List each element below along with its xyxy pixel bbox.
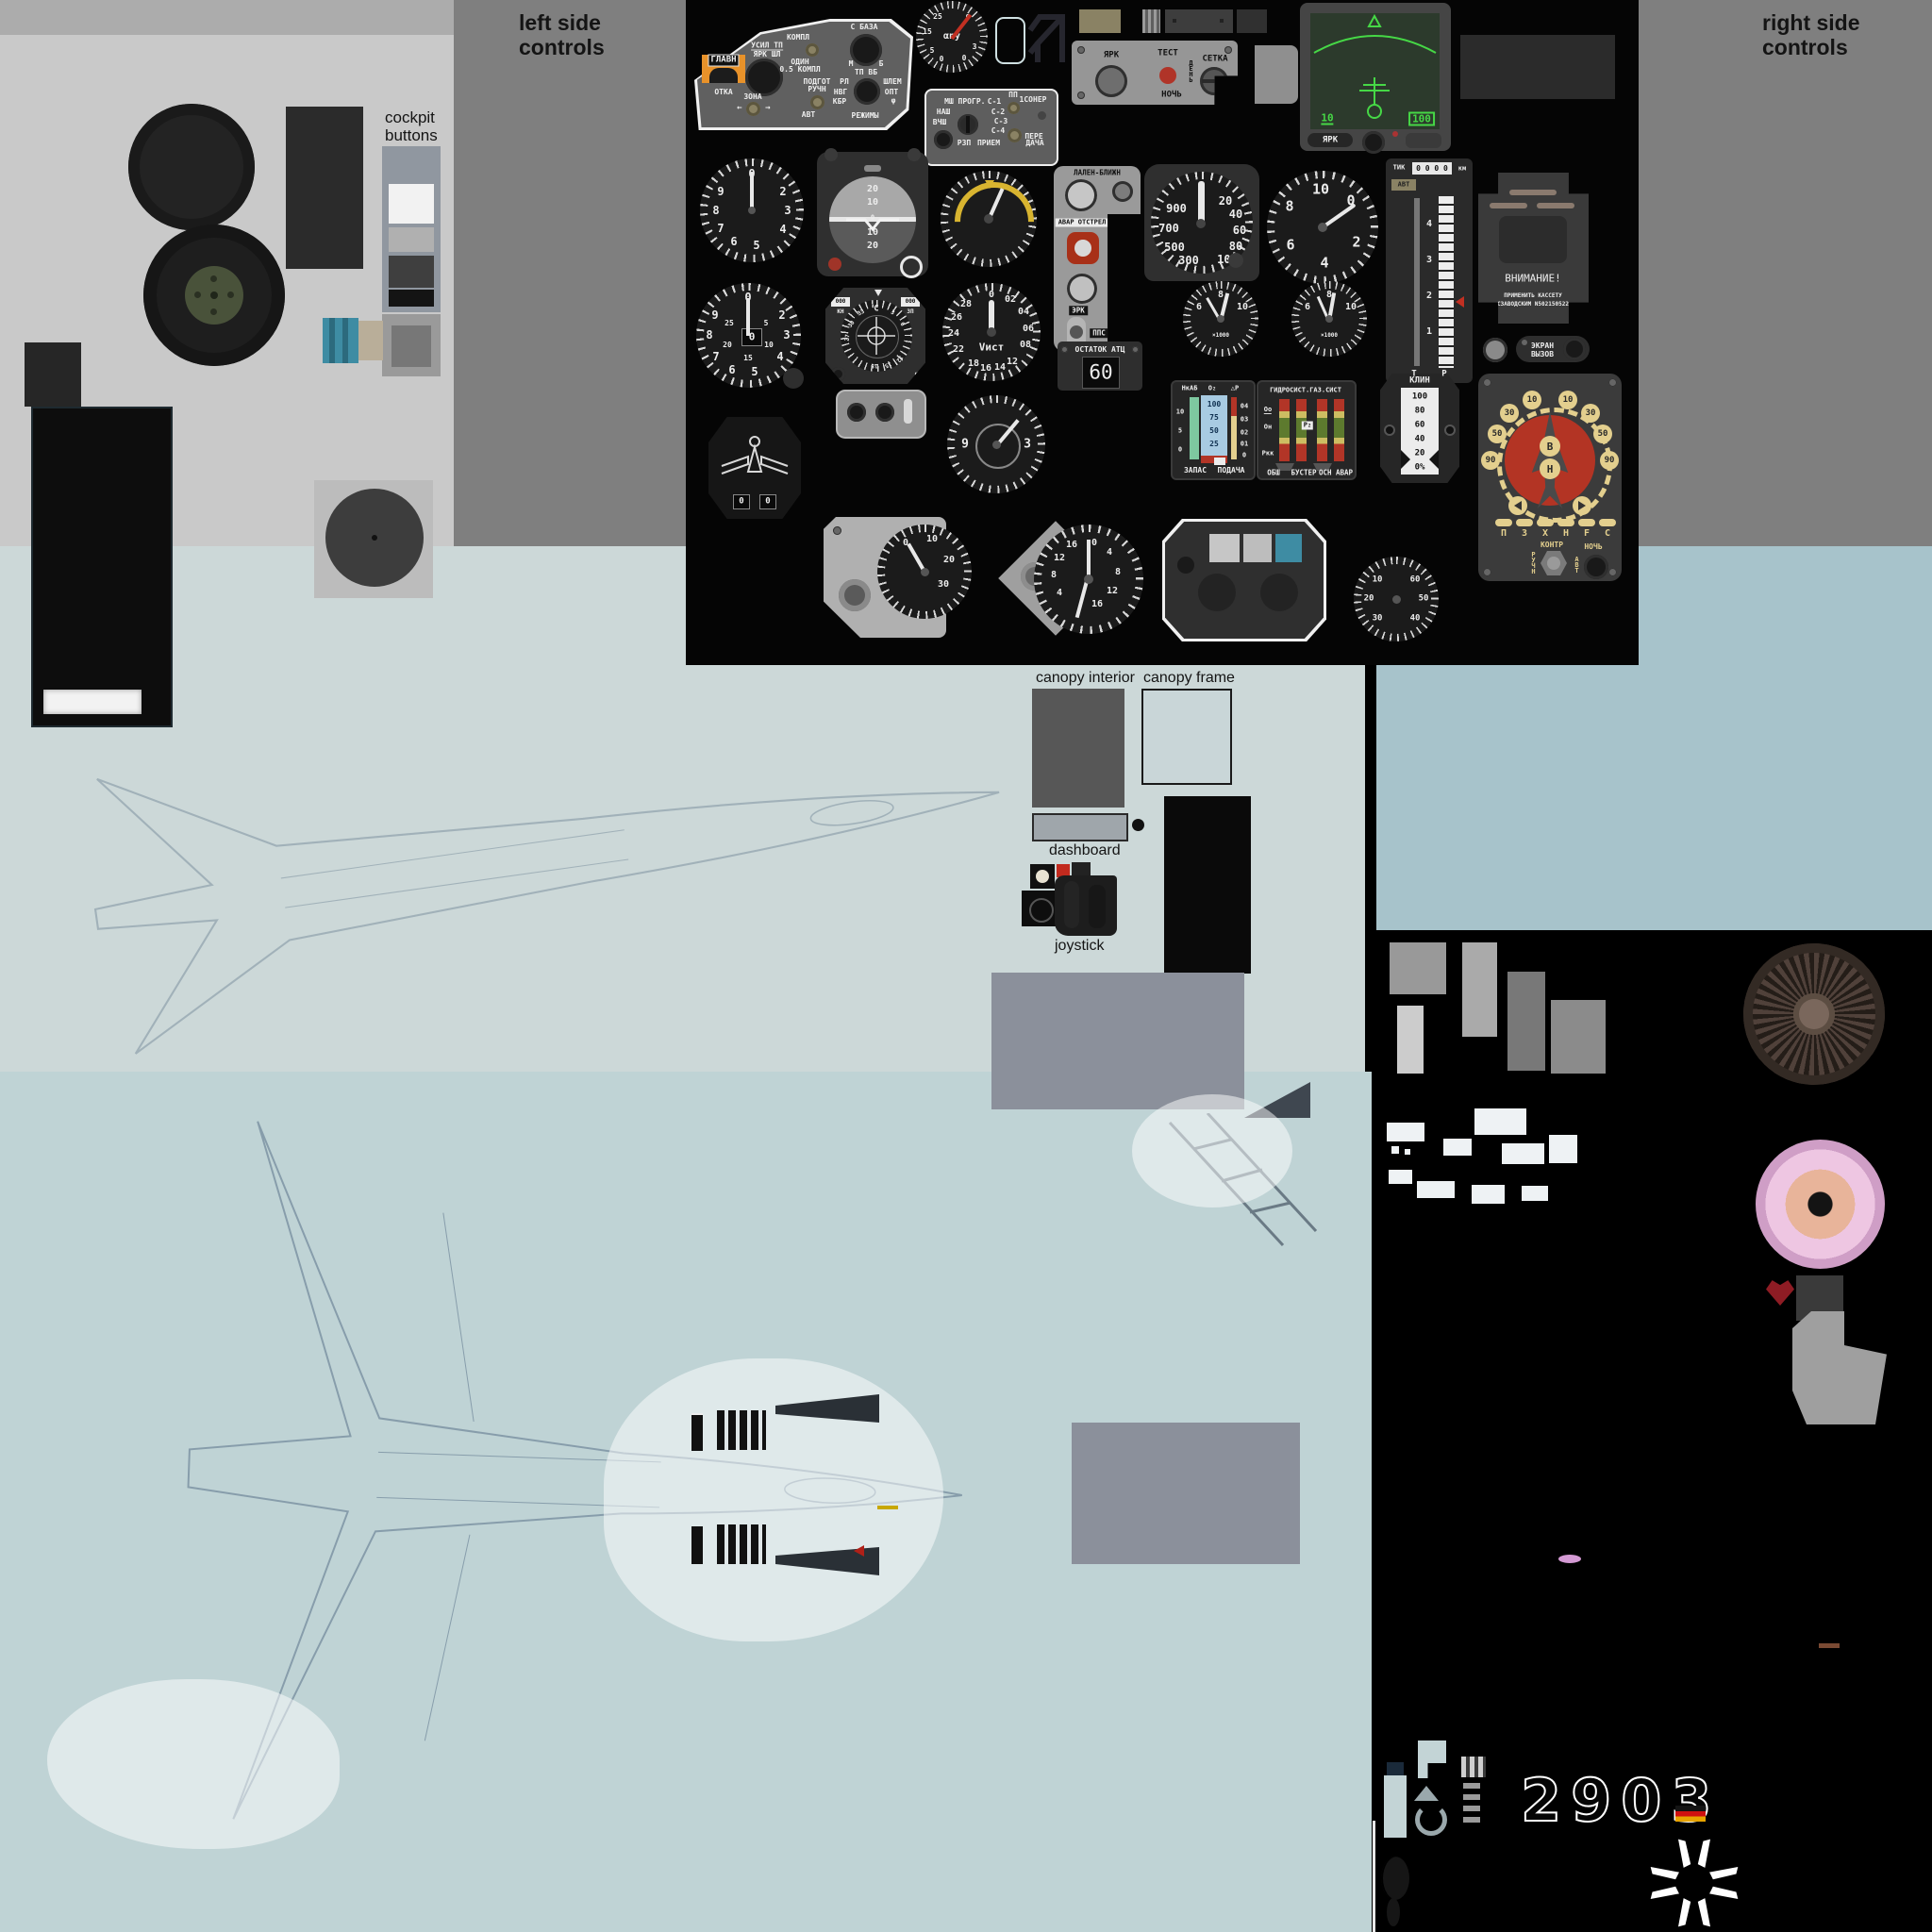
button-gray[interactable] (389, 227, 434, 252)
zona-arrow-right[interactable]: → (765, 105, 770, 113)
strip-toggle[interactable] (904, 399, 912, 424)
adf-card[interactable]: С 33 30 27 3 6 12 15 18 (841, 300, 912, 372)
striped-block-decal (1461, 1757, 1486, 1777)
nvg-label: НВГ (834, 89, 847, 96)
half-kompl-label: 0.5 КОМПЛ (779, 66, 820, 74)
circular-arrow-decal (1415, 1804, 1447, 1836)
ladder-dash-4 (1463, 1817, 1480, 1823)
canopy-interior-swatch (1032, 689, 1124, 808)
stopwatch-crown[interactable] (783, 368, 804, 389)
warning-line1: ПРИМЕНИТЬ КАССЕТУ (1504, 293, 1561, 299)
emblem-window-2: 0 (759, 494, 776, 509)
panel-square-2[interactable] (1243, 534, 1272, 562)
dark-box-right-of-radar (1460, 35, 1615, 99)
radar-red-dot (1392, 131, 1398, 137)
pressure-gauge: 10 20 30 40 50 60 (1354, 557, 1439, 641)
panel-square-teal[interactable] (1275, 534, 1302, 562)
panel-circle-2[interactable] (1260, 574, 1298, 611)
vario-gauge (941, 171, 1037, 267)
yark-knob[interactable] (1095, 65, 1127, 97)
small-dark-box (25, 342, 81, 407)
attitude-adjuster[interactable] (864, 165, 881, 172)
tp-vb-label: ТП ВБ (855, 69, 877, 76)
light-strip-9 (1522, 1186, 1548, 1201)
stopwatch-hand (746, 298, 750, 336)
light-strip-4 (1502, 1143, 1544, 1164)
speed-gauge: 900 700 500 300 20 40 60 80 100 (1144, 164, 1259, 281)
glavn-label: ГЛАВН (708, 56, 738, 66)
rpm-gauge-right: 6 8 10 ×1000 (1291, 281, 1367, 357)
altimeter: 10 0 2 4 6 8 (1267, 171, 1378, 284)
range-tape-strip (1439, 196, 1454, 368)
attitude-indicator: 20 10 0 10 20 (817, 152, 928, 276)
left-side-controls-label: left sidecontrols (519, 11, 605, 60)
fuselage-part-3 (1462, 942, 1497, 1037)
warning-window (1499, 216, 1567, 263)
warning-line2: СЗАВОДСКИМ N502150522 (1497, 302, 1569, 308)
attitude-sphere: 20 10 0 10 20 (829, 176, 916, 263)
hydraulic-bar-3 (1317, 399, 1327, 461)
range-thermo (1414, 198, 1420, 366)
adf-compass: 000 КН 000 ЗП С 33 30 27 3 6 12 15 18 φ (825, 288, 925, 384)
cockpit-buttons-label: cockpitbuttons (385, 108, 438, 144)
emblem-window-1: 0 (733, 494, 750, 509)
intake-detail-bottom (691, 1526, 703, 1564)
canopy-frame-label: canopy frame (1143, 670, 1235, 687)
avar-otstrel-button[interactable] (1067, 232, 1099, 264)
yellow-dash-decal (877, 1506, 898, 1509)
wing-emblem-indicator: 0 0 (708, 417, 801, 519)
bg-gray-mid-right (1639, 0, 1932, 546)
arrow-up-decal (1414, 1786, 1439, 1801)
range-pointer (1456, 296, 1464, 308)
aoa-g-gauge: 25 15 5 0 9 3 0 αnу (916, 1, 988, 73)
phi-label: φ (891, 97, 896, 105)
ladder-dash-3 (1463, 1806, 1480, 1811)
olive-strip (1079, 9, 1121, 33)
rpm-x1000: ×1000 (1212, 333, 1229, 339)
position-indicator: 10 10 30 30 50 50 90 90 В Н П З Х Н F С … (1478, 374, 1622, 581)
camera-pod (31, 407, 173, 727)
strip-knob-1[interactable] (847, 403, 866, 422)
tire-front (128, 104, 255, 230)
zona-arrow-left[interactable]: ← (737, 105, 741, 113)
white-blob-ladder (1132, 1094, 1292, 1207)
ekran-vyzov-pill[interactable]: ЭКРАН ВЫЗОВ (1516, 336, 1590, 362)
diamond-gauge: 16 12 8 4 0 4 8 12 16 (1034, 525, 1143, 634)
red-marker-decal (854, 1545, 864, 1557)
range-avt-window: АВТ (1391, 179, 1416, 191)
side-big-button[interactable] (1065, 179, 1097, 211)
black-swatch-tall (1164, 796, 1251, 974)
panel-square-1[interactable] (1209, 534, 1240, 562)
fuselage-part-2 (1397, 1006, 1424, 1074)
fuel-remaining: ОСТАТОК АТЦ 60 (1058, 341, 1142, 391)
intake-detail-top (691, 1413, 703, 1451)
erk-label: ЭРК (1069, 306, 1088, 315)
vist-label: Vист (979, 342, 1005, 353)
side-round-button[interactable] (1067, 274, 1097, 304)
pos-v-circle: В (1540, 436, 1560, 457)
ruchn-label: РУЧН (808, 86, 825, 93)
chrono-gauge: 9 3 (947, 395, 1045, 493)
range-km: км (1458, 166, 1466, 173)
beige-connector (358, 321, 383, 360)
bg-gray-topstrip (0, 0, 454, 35)
light-strip-3 (1443, 1139, 1472, 1156)
range-top-label: ТИК (1393, 165, 1406, 172)
white-line-edge (1373, 1821, 1375, 1932)
gunsight-frame-glyph (1024, 11, 1068, 64)
fuselage-part-1 (1390, 942, 1446, 994)
ekran-button-left[interactable] (1483, 338, 1507, 362)
ladder-dash-2 (1463, 1794, 1480, 1800)
oxygen-gauge: НкАБ О₂ △Р 10 5 0 100 75 50 25 04 03 02 … (1171, 380, 1256, 480)
radar-scope: 10 100 ЯРК (1300, 3, 1451, 151)
button-column-frame[interactable] (382, 146, 441, 312)
canopy-frame-swatch (1141, 689, 1232, 785)
canopy-seal-outline (995, 17, 1025, 64)
bg-gray-mid-left (454, 0, 686, 546)
klin-gauge: КЛИН 100 80 60 40 20 0% (1380, 374, 1459, 483)
dashboard-dot (1132, 819, 1144, 831)
warning-title: ВНИМАНИЕ! (1505, 274, 1561, 284)
side-small-button[interactable] (1112, 181, 1133, 202)
strut-block (286, 107, 363, 269)
light-strip-7 (1417, 1181, 1455, 1198)
kontr-knob[interactable] (1541, 551, 1567, 575)
gray-texture-block-2 (1072, 1423, 1300, 1564)
vist-gauge: 0 02 04 06 08 12 14 16 18 22 24 26 28 Vи… (942, 283, 1041, 381)
noch-label: НОЧЬ (1584, 543, 1602, 551)
hydraulic-bar-4 (1334, 399, 1344, 461)
canopy-interior-label: canopy interior (1036, 670, 1135, 687)
brown-dash-small (1819, 1643, 1840, 1648)
stopwatch-window: 0 (741, 328, 762, 346)
dalen-blizhn-label: ЛАЛЕН-БЛИЖН (1074, 169, 1121, 176)
hydraulic-bar-1 (1279, 399, 1290, 461)
cushion-oval-1 (1381, 1857, 1409, 1900)
fuel-label: ОСТАТОК АТЦ (1075, 346, 1125, 354)
noch-knob[interactable] (1584, 555, 1608, 579)
clock: 0 2 3 4 5 6 7 8 9 (700, 158, 804, 262)
kompl-knob[interactable] (806, 43, 819, 57)
dark-strip-2 (1237, 9, 1267, 33)
shlem-label: ШЛЕМ (883, 78, 901, 86)
range-odometer: 0 0 0 0 (1412, 162, 1452, 175)
ruchn-label: РУЧН (1530, 551, 1537, 574)
right-side-controls-label: right sidecontrols (1762, 11, 1860, 60)
warning-placard: ВНИМАНИЕ! ПРИМЕНИТЬ КАССЕТУ СЗАВОДСКИМ N… (1478, 173, 1589, 324)
light-strip-8 (1472, 1185, 1505, 1204)
baza-knob[interactable] (850, 34, 882, 66)
m-label: М (849, 60, 854, 68)
texture-atlas: left sidecontrols right sidecontrols coc… (0, 0, 1932, 1932)
speaker (325, 489, 424, 587)
wheel-hub (185, 266, 243, 325)
ladder-dash-1 (1463, 1783, 1480, 1789)
radio-panel: МШ ПРОГР. С-1 НАШ С-2 ВЧШ С-3 С-4 РЗП ПР… (924, 89, 1058, 166)
button-black[interactable] (389, 290, 434, 307)
stopwatch-gauge: 0 2 3 4 5 6 7 8 9 5 10 15 20 25 0 (696, 283, 801, 388)
german-flag-decal (1675, 1806, 1706, 1822)
teal-connector (323, 318, 358, 363)
podgot-knob[interactable] (810, 95, 824, 109)
button-white[interactable] (389, 184, 434, 224)
clock-hand (750, 172, 754, 210)
button-dark[interactable] (389, 256, 434, 288)
nozzle-stripes-top (717, 1410, 766, 1450)
pos-marker-right (1573, 496, 1591, 515)
pos-n-circle: Н (1540, 458, 1560, 479)
oxygen-blue-column: 100 75 50 25 (1201, 395, 1227, 456)
vyzov-knob[interactable] (1563, 338, 1586, 360)
klin-tape: 100 80 60 40 20 0% (1401, 388, 1439, 475)
button-plate[interactable] (382, 314, 441, 376)
test-label: ТЕСТ (1158, 50, 1178, 58)
light-strip-5 (1549, 1135, 1577, 1163)
zona-label: ЗОНА (743, 93, 761, 101)
light-dot-1 (1391, 1146, 1399, 1154)
bracket-hole (839, 579, 871, 611)
b-label: Б (879, 60, 884, 68)
striped-strip (1142, 9, 1160, 33)
avar-label: АВАР ОТСТРЕЛ (1056, 219, 1109, 227)
fuselage-part-4 (1507, 972, 1545, 1071)
den-label: ДЕНЬ (1188, 59, 1194, 82)
strip-knob-2[interactable] (875, 403, 894, 422)
dashboard-label: dashboard (1049, 842, 1121, 859)
oxygen-supply-column (1190, 397, 1199, 459)
kbr-label: КБР (833, 98, 846, 106)
radar-scale-high: 100 (1408, 112, 1435, 126)
radar-scale-low: 10 (1321, 113, 1333, 125)
panel-circle-1[interactable] (1198, 574, 1236, 611)
bottle-decal (1384, 1775, 1407, 1838)
aoa-needle (950, 14, 972, 41)
joystick-grip (1055, 875, 1117, 936)
rl-label: РЛ (840, 78, 849, 86)
bg-black-divider (1365, 665, 1376, 1072)
small-side-panel (1255, 45, 1298, 104)
yark-shl-label: ЯРК ШЛ (754, 51, 781, 58)
octagon-panel (1162, 519, 1326, 641)
usil-knob[interactable] (745, 58, 783, 96)
light-strip-2 (1387, 1123, 1424, 1141)
test-button[interactable] (1159, 67, 1176, 84)
hydraulic-gauge: ГИДРОСИСТ.ГАЗ.СИСТ Оо Он Ркк Р₂ ОБШ БУСТ… (1257, 380, 1357, 480)
fuselage-part-5 (1551, 1000, 1606, 1074)
radar-yark-pill[interactable]: ЯРК (1307, 133, 1353, 147)
nozzle-stripes-bottom (717, 1524, 766, 1564)
pink-oval-small (1558, 1555, 1581, 1563)
light-strip-1 (1474, 1108, 1526, 1135)
bundeswehr-cross-insignia (1638, 1834, 1751, 1932)
radio-pp-knob[interactable] (1008, 102, 1020, 114)
range-tape: ТИК 0 0 0 0 км АВТ 4 3 2 1 Т Р (1386, 158, 1473, 383)
pps-label: ППС (1090, 328, 1108, 338)
attitude-cage-knob[interactable] (828, 258, 841, 271)
knob-strip (836, 390, 926, 439)
radar-screen: 10 100 (1310, 13, 1440, 129)
gray-texture-block-1 (991, 973, 1244, 1109)
fuel-value: 60 (1089, 363, 1112, 383)
camera-pod-label (43, 690, 142, 714)
rezhimy-knob[interactable] (854, 78, 880, 105)
pos-marker-left (1508, 496, 1527, 515)
kontr-label: КОНТР (1541, 541, 1563, 549)
kompl-label: КОМПЛ (787, 34, 809, 42)
radar-blank-button[interactable] (1406, 133, 1441, 148)
attitude-ring[interactable] (900, 256, 923, 278)
brightness-panel: ЯРК ТЕСТ ДЕНЬ СЕТКА НОЧЬ (1072, 41, 1238, 105)
rpm-gauge-left: 6 8 10 ×1000 (1183, 281, 1258, 357)
hydraulic-title: ГИДРОСИСТ.ГАЗ.СИСТ (1270, 388, 1341, 394)
oxygen-right-bar (1231, 397, 1237, 459)
noch-label: НОЧЬ (1161, 92, 1182, 100)
turbine-fan (1743, 943, 1885, 1085)
rezhimy-label: РЕЖИМЫ (852, 112, 879, 120)
avt-label: АВТ (802, 111, 815, 119)
bottle-decal-cap (1387, 1762, 1404, 1775)
radio-channel-knob[interactable] (958, 114, 978, 135)
panel-circle-small[interactable] (1177, 557, 1194, 574)
s-baza-label: С БАЗА (851, 24, 878, 31)
afterburner-ring (1756, 1140, 1885, 1269)
dark-strip-1 (1165, 9, 1233, 33)
radio-dot (1038, 111, 1046, 120)
yark-knob-label: ЯРК (1104, 52, 1119, 60)
light-dot-2 (1405, 1149, 1410, 1155)
hydraulic-bar-2 (1296, 399, 1307, 461)
radar-knob[interactable] (1362, 131, 1385, 154)
avt-vert-label: АВТ (1574, 556, 1580, 573)
zona-knob[interactable] (746, 102, 760, 116)
opt-label: ОПТ (885, 89, 898, 96)
fuel-window: 60 (1082, 357, 1120, 389)
setka-label: СЕТКА (1202, 56, 1227, 64)
cushion-oval-2 (1387, 1898, 1400, 1926)
otka-label: ОТКА (714, 89, 732, 96)
light-strip-6 (1389, 1170, 1412, 1184)
radio-pere-knob[interactable] (1008, 128, 1022, 142)
radio-volume-knob[interactable] (934, 130, 953, 149)
